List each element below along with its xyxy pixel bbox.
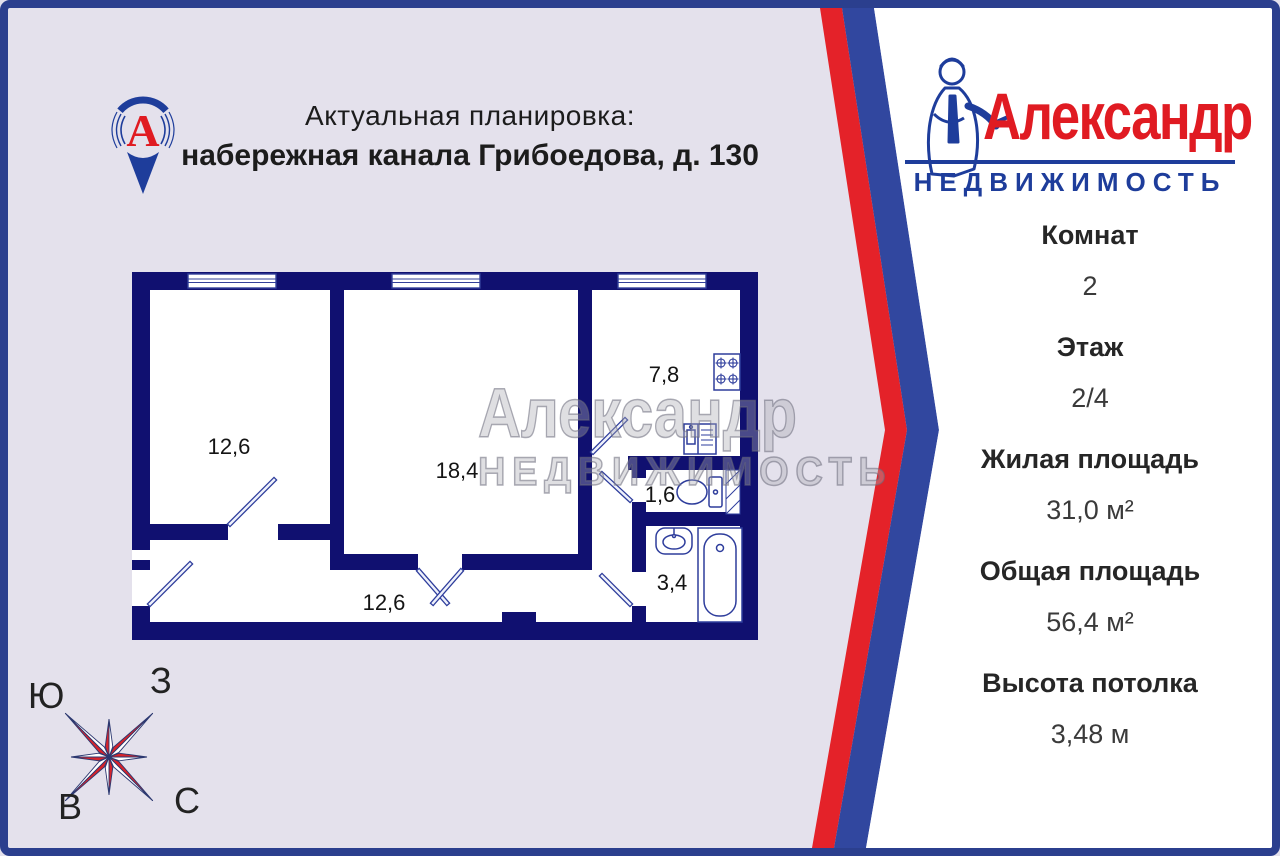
- spec-label: Этаж: [945, 334, 1235, 361]
- compass-label-west: З: [150, 660, 172, 702]
- floor-plan: 12,6 18,4 7,8 1,6 3,4 12,6: [132, 272, 758, 640]
- window-icon: [618, 274, 706, 288]
- brand-rule: [905, 160, 1235, 164]
- bathtub-icon: [698, 528, 742, 622]
- spec-value: 2/4: [945, 385, 1235, 412]
- room-label-wc: 1,6: [645, 482, 676, 507]
- pin-pointer: [127, 152, 159, 194]
- toilet-icon: [677, 477, 722, 507]
- washbasin-icon: [656, 528, 692, 554]
- pin-wave-left-1: [121, 116, 125, 144]
- stove-icon: [714, 354, 740, 390]
- windows: [188, 274, 706, 288]
- location-pin-logo: А: [95, 80, 191, 206]
- room-label-living: 18,4: [436, 458, 479, 483]
- wall-pilaster: [502, 612, 536, 622]
- flyer-canvas: Актуальная планировка: набережная канала…: [0, 0, 1280, 856]
- compass-label-south: Ю: [28, 675, 64, 717]
- brand-name: Александр: [983, 78, 1252, 154]
- page-title: Актуальная планировка:: [180, 100, 760, 132]
- window-icon: [392, 274, 480, 288]
- spec-row-floor: Этаж 2/4: [945, 334, 1235, 412]
- spec-label: Высота потолка: [945, 670, 1235, 697]
- room-label-hall: 12,6: [363, 590, 406, 615]
- pin-letter: А: [126, 105, 159, 156]
- spec-value: 3,48 м: [945, 721, 1235, 748]
- spec-row-living-area: Жилая площадь 31,0 м²: [945, 446, 1235, 524]
- address-title: набережная канала Грибоедова, д. 130: [180, 139, 760, 173]
- spec-value: 31,0 м²: [945, 497, 1235, 524]
- spec-row-total-area: Общая площадь 56,4 м²: [945, 558, 1235, 636]
- window-icon: [188, 274, 276, 288]
- agent-head: [940, 60, 964, 84]
- kitchen-sink-icon: [684, 424, 716, 454]
- room-label-room1: 12,6: [208, 434, 251, 459]
- pin-wave-right-1: [161, 116, 165, 144]
- compass-label-east: В: [58, 786, 82, 828]
- header-title-block: Актуальная планировка: набережная канала…: [180, 100, 760, 173]
- compass-label-north: С: [174, 780, 200, 822]
- entrance-opening: [132, 570, 150, 606]
- specs-panel: Комнат 2 Этаж 2/4 Жилая площадь 31,0 м² …: [945, 222, 1235, 782]
- spec-value: 56,4 м²: [945, 609, 1235, 636]
- room-label-kitchen: 7,8: [649, 362, 680, 387]
- spec-value: 2: [945, 273, 1235, 300]
- spec-row-rooms: Комнат 2: [945, 222, 1235, 300]
- agent-tie: [949, 96, 958, 142]
- room-label-bath: 3,4: [657, 570, 688, 595]
- brand-subtitle: НЕДВИЖИМОСТЬ: [905, 167, 1235, 198]
- spec-label: Комнат: [945, 222, 1235, 249]
- vent-shaft-hatch: [726, 470, 740, 514]
- spec-label: Жилая площадь: [945, 446, 1235, 473]
- spec-row-ceiling-height: Высота потолка 3,48 м: [945, 670, 1235, 748]
- left-wall-notch: [132, 550, 150, 560]
- spec-label: Общая площадь: [945, 558, 1235, 585]
